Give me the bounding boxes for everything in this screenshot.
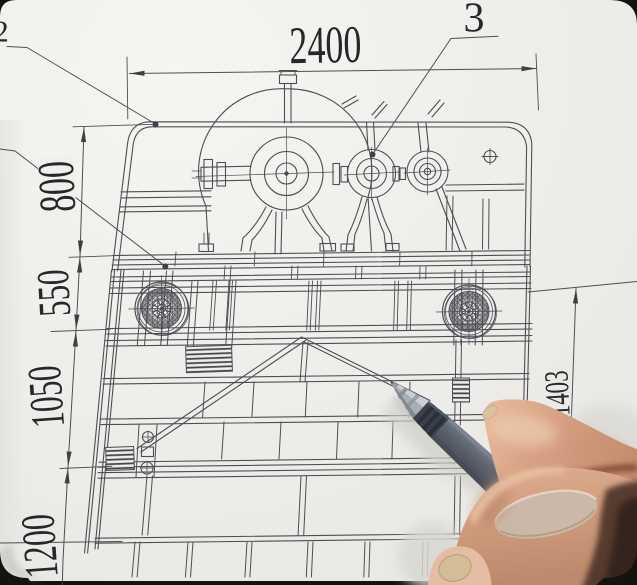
svg-text:2: 2 [0,14,9,49]
svg-text:3: 3 [464,0,485,42]
svg-text:2400: 2400 [289,16,362,75]
svg-text:1050: 1050 [18,364,75,430]
svg-text:550: 550 [27,268,80,318]
svg-text:1200: 1200 [11,512,68,580]
svg-text:800: 800 [28,160,88,214]
